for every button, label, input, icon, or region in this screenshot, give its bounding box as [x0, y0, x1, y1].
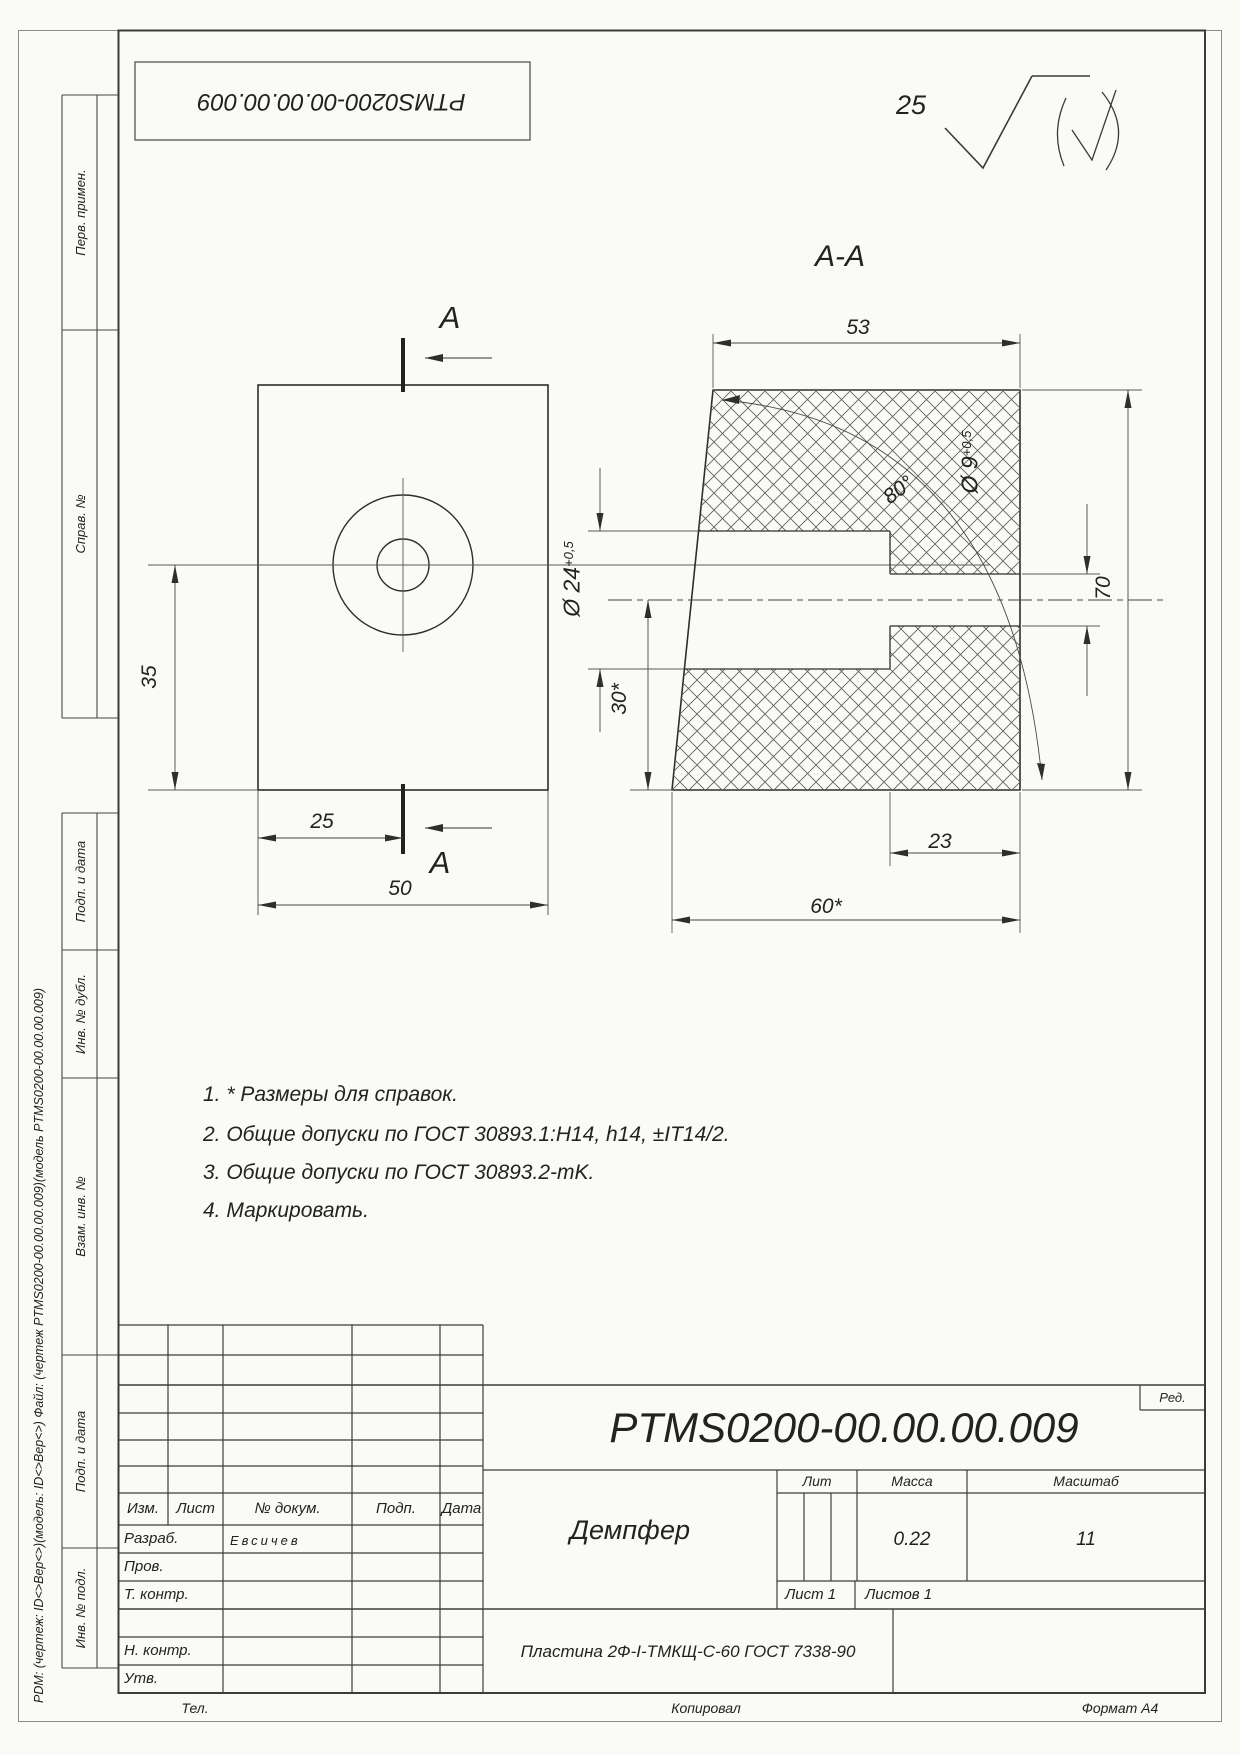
dim-50: 50: [378, 877, 422, 903]
side-stamp-cell-sprav-no: Справ. №: [64, 330, 97, 718]
bore-small-tolerance: +0,5: [959, 431, 974, 457]
dim-30ref: 30*: [608, 674, 632, 724]
roughness-symbol: [945, 76, 1119, 170]
sheet-borders: [19, 31, 1222, 1722]
cut-label-bottom: A: [415, 845, 465, 881]
hatch-lower: [672, 626, 1020, 790]
drawing-sheet: PTMS0200-00.00.00.009 25 PDM: (чертеж: I…: [0, 0, 1240, 1755]
side-stamp-cell-podp-data-1: Подп. и дата: [64, 813, 97, 950]
row-label-tkontr: Т. контр.: [124, 1581, 223, 1609]
col-header-list: Лист: [168, 1493, 223, 1525]
cut-label-top: A: [425, 300, 475, 336]
pdm-info-line: PDM: (чертеж: ID<>Вер<>)(модель: ID<>Вер…: [32, 488, 50, 1703]
section-title: A-A: [795, 240, 885, 278]
note-2: 2. Общие допуски по ГОСТ 30893.1:H14, h1…: [203, 1123, 730, 1153]
scale-value: 11: [967, 1520, 1205, 1560]
dim-bore-large: Ø 24+0,5: [548, 524, 590, 634]
scale-header: Масштаб: [967, 1470, 1205, 1493]
side-stamp-cell-podp-data-2: Подп. и дата: [64, 1355, 97, 1548]
dim-60ref: 60*: [800, 895, 852, 921]
roughness-value: 25: [896, 90, 940, 124]
side-stamp-cell-perv-primen: Перв. примен.: [64, 95, 97, 330]
part-name: Демпфер: [483, 1503, 777, 1557]
sheets-total: Листов 1: [865, 1581, 995, 1609]
footer-format: Формат А4: [1058, 1695, 1182, 1721]
bore-large-tolerance: +0,5: [561, 541, 576, 567]
col-header-sign: Подп.: [352, 1493, 440, 1525]
side-stamp-cell-inv-podl: Инв. № подл.: [64, 1548, 97, 1668]
dim-23: 23: [918, 830, 962, 856]
row-label-nkontr: Н. контр.: [124, 1637, 223, 1665]
dim-80deg: 80°: [868, 463, 933, 521]
row-label-razrab: Разраб.: [124, 1525, 223, 1553]
section-view: [588, 334, 1168, 933]
lit-header: Лит: [777, 1470, 857, 1493]
footer-copied: Копировал: [645, 1695, 767, 1721]
note-3: 3. Общие допуски по ГОСТ 30893.2-mK.: [203, 1161, 594, 1191]
row-label-prov: Пров.: [124, 1553, 223, 1581]
dim-70: 70: [1092, 566, 1116, 610]
side-stamp-cell-inv-dubl: Инв. № дубл.: [64, 950, 97, 1078]
mass-header: Масса: [857, 1470, 967, 1493]
dim-35: 35: [138, 654, 164, 700]
bore-small-value: Ø 9: [956, 456, 982, 493]
razrab-name: Евсичев: [230, 1529, 350, 1553]
dim-53: 53: [838, 316, 878, 342]
bore-large-value: Ø 24: [558, 567, 584, 617]
dim-25: 25: [302, 810, 342, 836]
col-header-date: Дата: [440, 1493, 483, 1525]
sheet-number: Лист 1: [785, 1581, 853, 1609]
note-1: 1. * Размеры для справок.: [203, 1083, 458, 1113]
note-4: 4. Маркировать.: [203, 1199, 369, 1229]
dim-bore-small: Ø 9+0,5: [946, 408, 988, 516]
material-spec: Пластина 2Ф-I-ТМКЩ-С-60 ГОСТ 7338-90: [483, 1630, 893, 1674]
row-label-utv: Утв.: [124, 1665, 223, 1693]
side-stamp-cell-vzam-inv: Взам. инв. №: [64, 1078, 97, 1355]
col-header-doc: № докум.: [223, 1493, 352, 1525]
col-header-izm: Изм.: [118, 1493, 168, 1525]
revision-cell-label: Ред.: [1140, 1385, 1205, 1410]
top-stamp-designation: PTMS0200-00.00.00.009: [133, 77, 530, 125]
mass-value: 0.22: [857, 1520, 967, 1560]
title-block-designation: PTMS0200-00.00.00.009: [483, 1390, 1205, 1466]
footer-tel: Тел.: [150, 1695, 240, 1721]
